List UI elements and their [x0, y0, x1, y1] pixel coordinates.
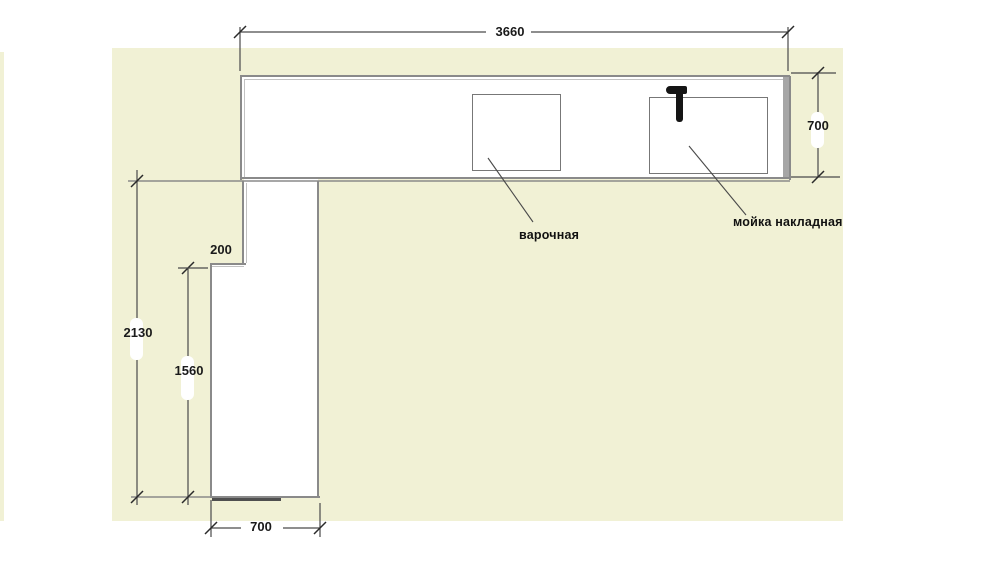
dim-label-left-height: 2130 — [119, 326, 157, 340]
dim-label-top-width: 3660 — [490, 25, 530, 39]
kitchen-plan-drawing: 3660 700 2130 1560 200 700 варочная мойк… — [0, 0, 1000, 572]
dim-label-step-width: 200 — [206, 243, 236, 257]
cooktop-label: варочная — [519, 228, 579, 242]
countertop-bottom-extension-line — [128, 181, 790, 497]
dim-label-inner-height: 1560 — [170, 364, 208, 378]
leader-lines — [488, 146, 746, 222]
dim-label-bottom-width: 700 — [244, 520, 278, 534]
dimension-lines-layer — [0, 0, 1000, 572]
dim-label-right-depth: 700 — [804, 119, 832, 133]
sink-label: мойка накладная — [733, 215, 843, 229]
